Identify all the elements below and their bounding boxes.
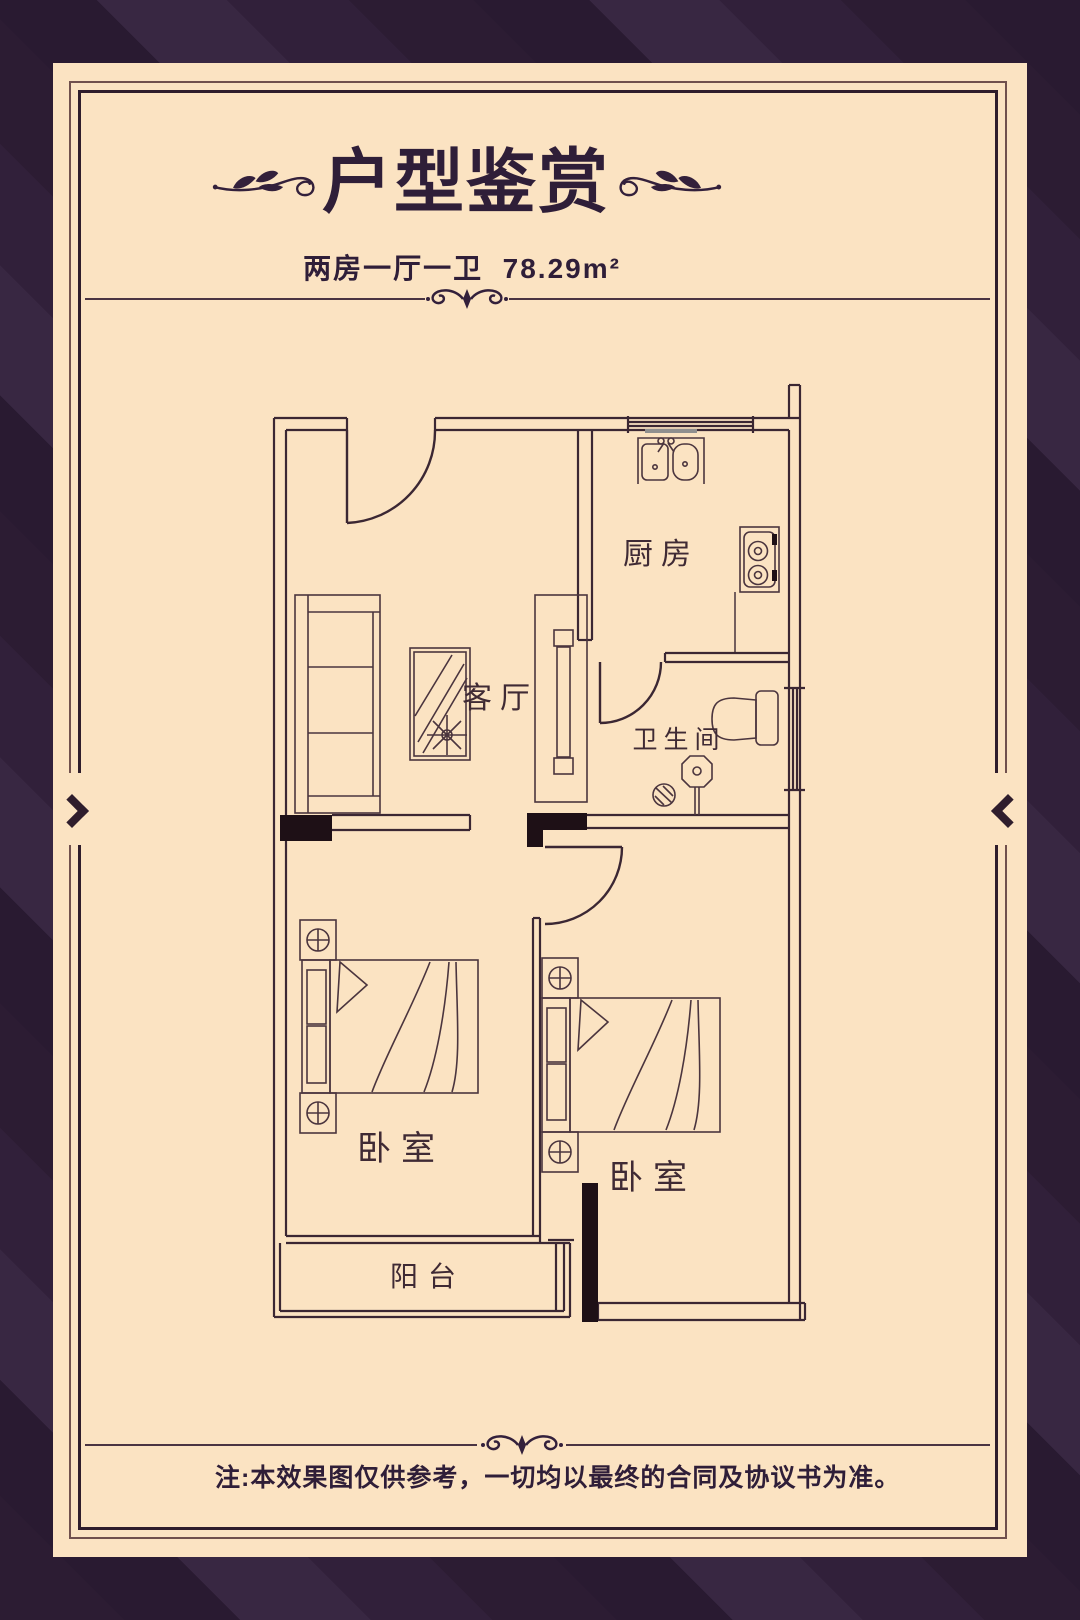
bathroom-door: [600, 662, 661, 723]
room-label-bedroom-1: 卧室: [357, 1129, 445, 1169]
coffee-table: [410, 648, 470, 760]
room-label-kitchen: 厨房: [623, 537, 699, 572]
unit-layout-text: 两房一厅一卫: [303, 253, 483, 284]
footer-divider-right: [566, 1444, 990, 1446]
door-swings: [347, 430, 661, 924]
floor-plan: 厨房 客厅 卫生间 卧室 卧室 阳台: [250, 378, 820, 1328]
room-label-bathroom: 卫生间: [632, 725, 725, 754]
kitchen-sink: [638, 429, 704, 484]
footer-divider-ornament-icon: [480, 1432, 564, 1458]
page-title: 户型鉴赏: [322, 142, 622, 223]
unit-area-text: 78.29m²: [503, 253, 621, 284]
tv-wall: [535, 595, 587, 802]
solid-wall-fills: [280, 813, 598, 1322]
poster-page: { "header": { "title": "户型鉴赏", "layout_t…: [0, 0, 1080, 1620]
walls: [274, 385, 805, 1320]
header-divider-right: [509, 298, 990, 300]
room-label-bedroom-2: 卧室: [609, 1158, 697, 1198]
room-label-living-room: 客厅: [462, 681, 538, 716]
unit-spec: 两房一厅一卫 78.29m²: [282, 247, 642, 287]
header-divider-ornament-icon: [425, 286, 509, 312]
disclaimer-note: 注:本效果图仅供参考，一切均以最终的合同及协议书为准。: [215, 1458, 865, 1494]
bedroom-2-furniture: [542, 958, 720, 1172]
stove: [740, 527, 779, 592]
bedroom-2-door: [545, 847, 622, 924]
room-labels: 厨房 客厅 卫生间 卧室 卧室 阳台: [357, 537, 726, 1293]
flourish-right-icon: [617, 160, 722, 206]
footer-divider-left: [85, 1444, 477, 1446]
room-label-balcony: 阳台: [390, 1260, 466, 1293]
header-divider-left: [85, 298, 425, 300]
flourish-left-icon: [212, 160, 317, 206]
table-plant: [427, 715, 467, 755]
sofa: [295, 595, 380, 813]
bathroom-sink: [682, 756, 712, 815]
bedroom-1-furniture: [300, 920, 478, 1133]
entrance-door: [347, 430, 435, 523]
floor-drain: [653, 784, 675, 806]
